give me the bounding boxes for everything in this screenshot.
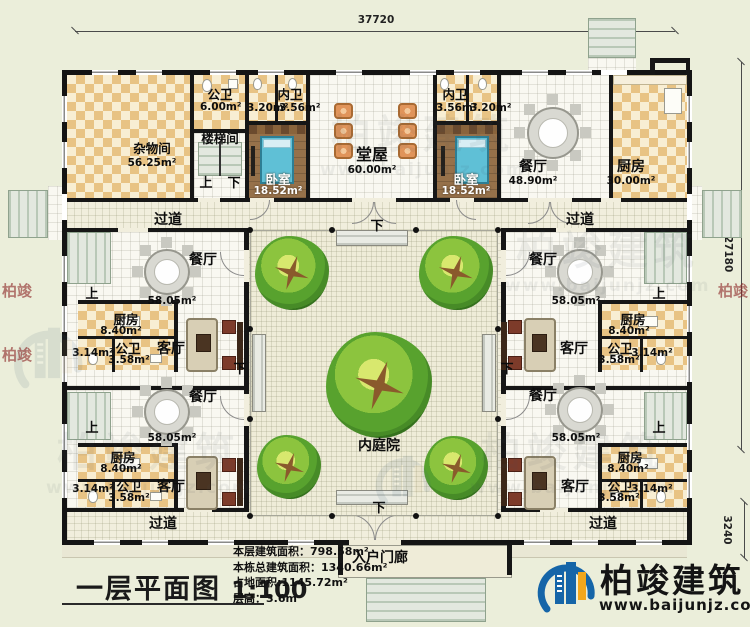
- brand-logo-icon: [536, 554, 596, 618]
- room-area: 3.14m²: [631, 348, 673, 359]
- corridor-label: 过道: [580, 517, 626, 532]
- room-name: 餐厅: [182, 390, 224, 405]
- dimension-line-right: [741, 62, 742, 450]
- stat-line: 占地面积:1145.72m²: [233, 575, 387, 591]
- window: [136, 70, 162, 75]
- stairs-down-label: 下: [227, 177, 241, 191]
- area-stats: 本层建筑面积：798.58m² 本栋总建筑面积：1340.66m² 占地面积:1…: [233, 544, 387, 606]
- window: [524, 540, 550, 545]
- dimension-line-top: [75, 31, 675, 32]
- brand-name: 柏竣建筑: [600, 554, 744, 602]
- room-area: 3.58m²: [108, 355, 150, 366]
- steps-down-label: 下: [499, 363, 515, 377]
- room-name: 内卫: [437, 88, 473, 101]
- room-name: 客厅: [553, 342, 595, 357]
- exterior-stairs-north: [588, 18, 636, 58]
- room-area: 8.40m²: [100, 326, 142, 337]
- watermark-logo-icon: [374, 448, 432, 510]
- corner-dot: [329, 513, 335, 519]
- dimension-top: 37720: [353, 14, 399, 26]
- floor-plan: 37720 27180 3240: [0, 0, 750, 627]
- window: [687, 356, 692, 382]
- stat-line: 本栋总建筑面积：1340.66m²: [233, 560, 387, 576]
- room-name: 杂物间: [120, 142, 184, 155]
- watermark-name: 柏竣建筑: [320, 102, 526, 160]
- wall: [507, 545, 512, 575]
- room-name: 厨房: [609, 160, 653, 175]
- door-gap: [198, 198, 220, 202]
- watermark-text: 柏竣建筑 www.baijunjz.com: [320, 102, 526, 180]
- exterior-stairs-west: [8, 190, 48, 238]
- room-area: 56.25m²: [122, 158, 182, 169]
- watermark-site: www.baijunjz.com: [505, 276, 711, 296]
- fridge: [664, 88, 682, 114]
- room-area: 8.40m²: [608, 326, 650, 337]
- corner-dot: [413, 513, 419, 519]
- window: [94, 540, 120, 545]
- steps-down-label: 下: [232, 363, 248, 377]
- room-area: 6.00m²: [200, 102, 240, 113]
- room-name: 公卫: [202, 88, 238, 101]
- stat-line: 层高：3.6m: [233, 591, 387, 607]
- window: [687, 142, 692, 168]
- room-area: 3.20m²: [247, 103, 279, 114]
- watermark-site: www.baijunjz.com: [320, 160, 526, 180]
- watermark-text: 柏竣建筑 www.baijunjz.com: [505, 218, 711, 296]
- corner-dot: [495, 227, 501, 233]
- watermark-red-stamp: 柏竣建筑: [718, 280, 748, 301]
- watermark-text: 柏竣建筑 www.baijunjz.com: [46, 420, 252, 498]
- wall: [686, 58, 690, 75]
- window: [687, 472, 692, 498]
- window: [62, 96, 67, 122]
- window: [572, 540, 598, 545]
- room-area: 18.52m²: [250, 186, 306, 197]
- window: [62, 256, 67, 282]
- stairs-up-label: 上: [84, 288, 100, 302]
- wardrobe: [249, 125, 306, 134]
- window: [62, 142, 67, 168]
- room-name: 餐厅: [182, 253, 224, 268]
- corner-dot: [247, 227, 253, 233]
- tv-cabinet: [251, 146, 255, 176]
- toilet: [478, 78, 487, 90]
- steps-down-label: 下: [369, 220, 385, 234]
- watermark-name: 柏竣建筑: [46, 420, 252, 478]
- wall: [67, 228, 244, 232]
- tree: [255, 236, 329, 310]
- door-gap: [244, 250, 249, 282]
- corridor-label: 过道: [140, 517, 186, 532]
- courtyard-steps-west: [252, 334, 266, 412]
- dimension-right-lower: 3240: [721, 507, 733, 553]
- corner-dot: [413, 227, 419, 233]
- window: [687, 96, 692, 122]
- room-name: 楼梯间: [192, 132, 248, 145]
- window: [454, 70, 480, 75]
- door-gap: [601, 198, 621, 202]
- armchair: [508, 320, 522, 334]
- stat-line: 本层建筑面积：798.58m²: [233, 544, 387, 560]
- corner-dot: [247, 513, 253, 519]
- window: [336, 70, 362, 75]
- room-name: 餐厅: [522, 389, 564, 404]
- corner-dot: [329, 227, 335, 233]
- window: [410, 70, 436, 75]
- wall: [650, 58, 690, 63]
- room-area: 30.00m²: [604, 176, 658, 187]
- room-name: 客厅: [150, 342, 192, 357]
- tree: [257, 435, 321, 499]
- window: [142, 540, 168, 545]
- watermark-name: 柏竣建筑: [505, 218, 711, 276]
- door-gap: [118, 228, 148, 232]
- room-storage: [67, 75, 190, 198]
- tree: [326, 332, 432, 438]
- window: [210, 70, 236, 75]
- window: [687, 424, 692, 450]
- watermark-site: www.baijunjz.com: [46, 478, 252, 498]
- window: [566, 70, 592, 75]
- coffee-table: [532, 334, 547, 352]
- kitchen-counter: [613, 75, 687, 85]
- tree: [419, 236, 493, 310]
- corner-dot: [247, 326, 253, 332]
- stairwell-divider: [219, 142, 221, 176]
- brand-website: www.baijunjz.com: [599, 596, 750, 614]
- room-area: 3.56m²: [279, 103, 313, 114]
- room-area: 58.05m²: [551, 296, 601, 307]
- window: [687, 306, 692, 332]
- courtyard-steps-east: [482, 334, 496, 412]
- door-gap: [62, 194, 67, 220]
- armchair: [222, 320, 236, 334]
- pillow: [263, 139, 291, 148]
- coffee-table: [196, 334, 211, 352]
- dimension-line-right-lower: [744, 502, 745, 558]
- wall: [598, 300, 687, 304]
- watermark-site: www.baijunjz.com: [470, 478, 676, 498]
- watermark-red-stamp: 柏竣建筑: [2, 280, 32, 301]
- wing-stairs-left-a: [67, 232, 111, 284]
- plan-title-text: 一层平面图: [76, 567, 221, 606]
- window: [208, 540, 234, 545]
- corridor-label: 过道: [145, 213, 191, 228]
- watermark-text: 柏竣建筑 www.baijunjz.com: [470, 420, 676, 498]
- door-gap: [687, 194, 692, 220]
- stairs-up-label: 上: [199, 177, 213, 191]
- room-area: 58.05m²: [147, 296, 197, 307]
- exterior-landing-west: [48, 186, 62, 240]
- toilet: [253, 78, 262, 90]
- window: [636, 540, 662, 545]
- room-area: 18.52m²: [438, 186, 494, 197]
- watermark-name: 柏竣建筑: [470, 420, 676, 478]
- corner-dot: [495, 513, 501, 519]
- wall: [67, 508, 244, 512]
- room-name: 内卫: [272, 88, 308, 101]
- window: [92, 70, 118, 75]
- window: [522, 70, 548, 75]
- watermark-red-stamp: 柏竣建筑: [2, 344, 32, 365]
- dining-table: [527, 107, 579, 159]
- window: [258, 70, 284, 75]
